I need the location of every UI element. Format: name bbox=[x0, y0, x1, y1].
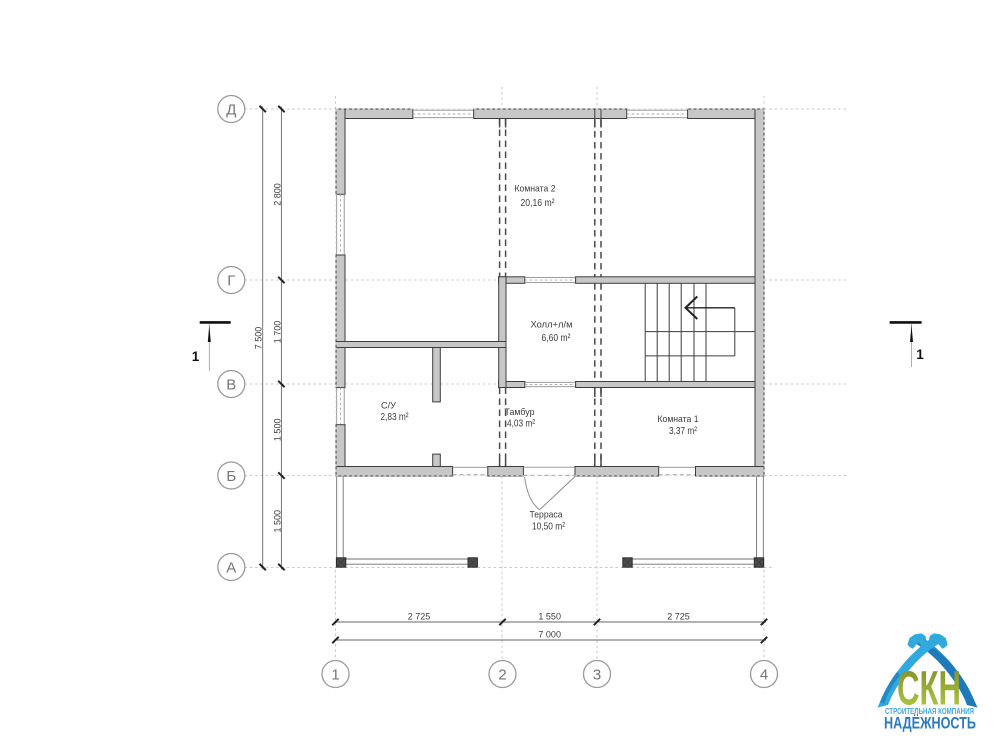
svg-text:Тамбур: Тамбур bbox=[505, 407, 535, 418]
svg-text:2: 2 bbox=[498, 666, 506, 683]
svg-text:7 500: 7 500 bbox=[254, 327, 264, 350]
svg-text:1: 1 bbox=[192, 349, 200, 364]
svg-text:2 800: 2 800 bbox=[272, 183, 282, 206]
svg-text:10,50 m²: 10,50 m² bbox=[532, 521, 565, 533]
svg-text:6,60 m²: 6,60 m² bbox=[542, 332, 571, 344]
svg-text:Б: Б bbox=[226, 468, 236, 485]
svg-text:Комната 1: Комната 1 bbox=[658, 414, 699, 425]
svg-text:1 700: 1 700 bbox=[272, 321, 282, 344]
svg-text:1 500: 1 500 bbox=[272, 510, 282, 533]
svg-text:С/У: С/У bbox=[381, 401, 397, 412]
svg-text:2 725: 2 725 bbox=[667, 612, 690, 622]
svg-text:7 000: 7 000 bbox=[538, 630, 561, 640]
svg-text:4: 4 bbox=[760, 666, 768, 683]
svg-text:А: А bbox=[226, 559, 236, 576]
svg-text:1: 1 bbox=[331, 666, 339, 683]
svg-text:2,83 m²: 2,83 m² bbox=[381, 411, 409, 423]
svg-text:20,16 m²: 20,16 m² bbox=[521, 197, 555, 209]
svg-text:Комната 2: Комната 2 bbox=[515, 184, 556, 195]
svg-text:Г: Г bbox=[227, 272, 235, 289]
svg-text:4,03 m²: 4,03 m² bbox=[507, 418, 535, 430]
svg-text:Холл+л/м: Холл+л/м bbox=[531, 320, 573, 331]
svg-text:3,37 m²: 3,37 m² bbox=[669, 425, 697, 437]
svg-text:1 550: 1 550 bbox=[538, 612, 561, 622]
svg-text:В: В bbox=[226, 376, 236, 393]
svg-text:2 725: 2 725 bbox=[408, 612, 431, 622]
svg-text:Д: Д bbox=[226, 101, 236, 118]
svg-text:1: 1 bbox=[916, 347, 924, 362]
svg-text:3: 3 bbox=[593, 666, 601, 683]
svg-text:НАДЁЖНОСТЬ: НАДЁЖНОСТЬ bbox=[884, 715, 976, 733]
svg-text:Терраса: Терраса bbox=[530, 510, 564, 521]
svg-text:1 500: 1 500 bbox=[272, 419, 282, 442]
